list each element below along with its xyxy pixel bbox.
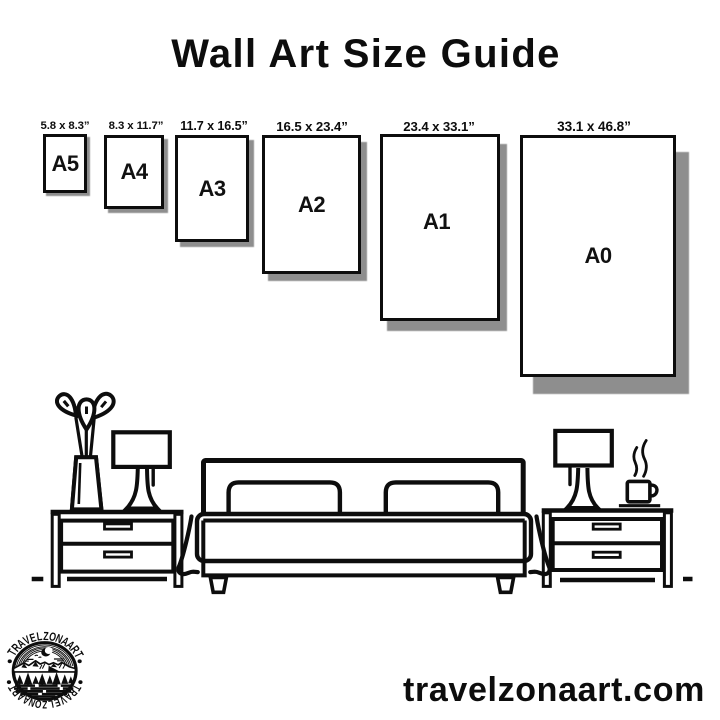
svg-text:Z: Z [42, 697, 47, 709]
